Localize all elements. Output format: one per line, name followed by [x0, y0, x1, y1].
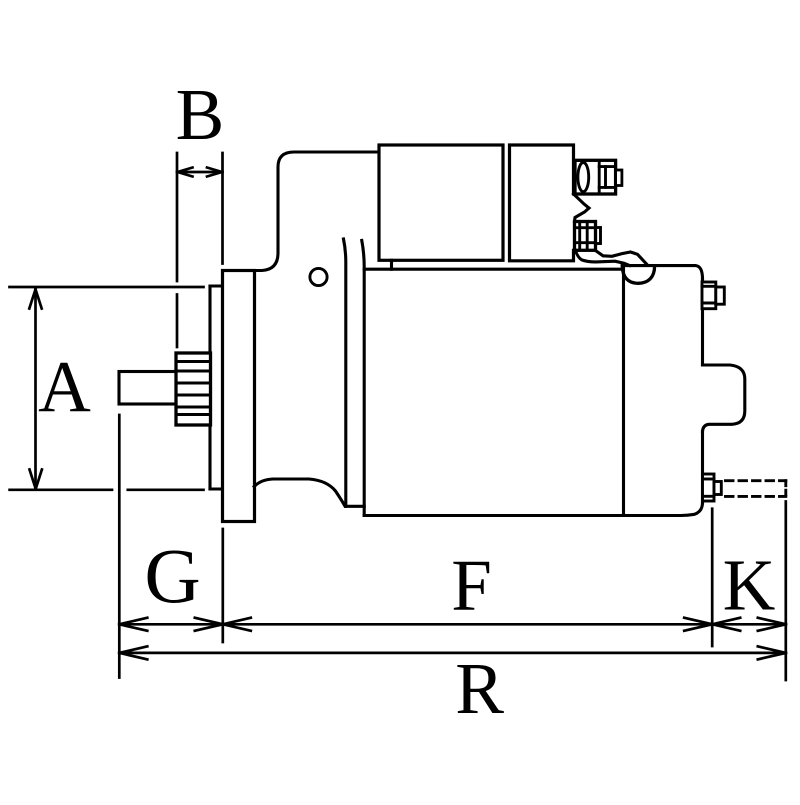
svg-text:G: G — [144, 532, 200, 619]
svg-text:A: A — [38, 346, 91, 427]
svg-text:K: K — [723, 545, 776, 626]
svg-text:B: B — [176, 74, 225, 155]
svg-text:F: F — [451, 545, 492, 626]
svg-text:R: R — [455, 648, 504, 729]
